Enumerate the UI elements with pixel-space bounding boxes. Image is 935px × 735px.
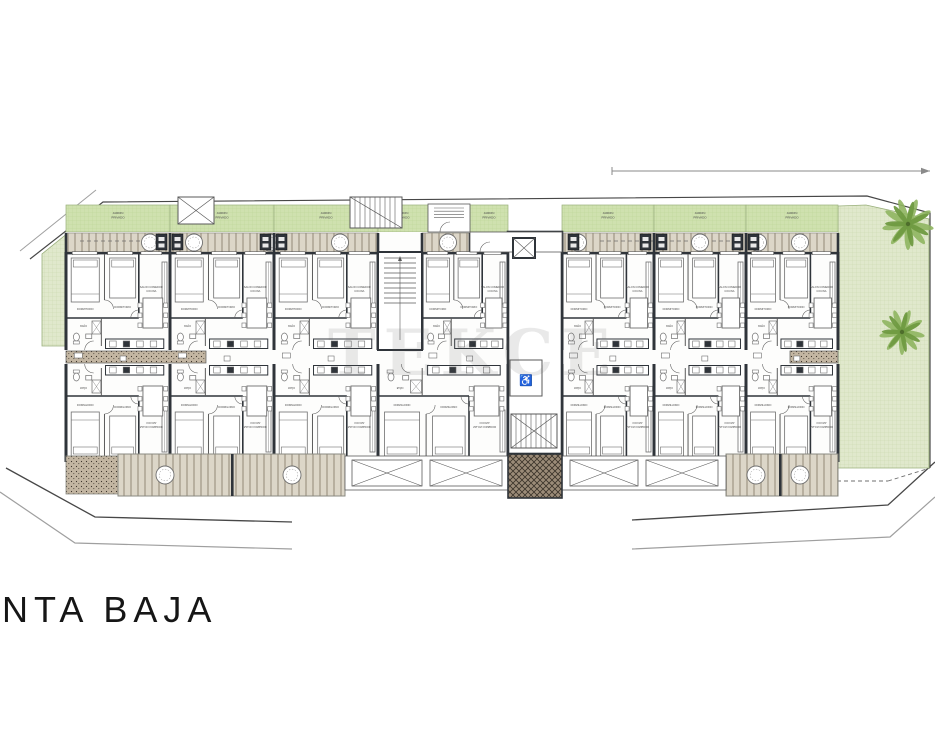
- svg-text:DORMITORIO: DORMITORIO: [663, 403, 680, 407]
- round-table: [792, 234, 809, 251]
- round-table: [791, 466, 809, 484]
- svg-text:BAÑO: BAÑO: [758, 386, 765, 389]
- svg-text:JARDIN: JARDIN: [217, 211, 228, 215]
- svg-text:DORMITORIO: DORMITORIO: [218, 305, 235, 309]
- svg-text:JARDIN: JARDIN: [787, 211, 798, 215]
- svg-text:JARDIN: JARDIN: [695, 211, 706, 215]
- svg-text:DORMITORIO: DORMITORIO: [571, 307, 588, 311]
- svg-text:DORMITORIO: DORMITORIO: [114, 405, 131, 409]
- svg-text:PRIVADO: PRIVADO: [215, 216, 229, 220]
- round-table: [332, 234, 349, 251]
- plan-title: NTA BAJA: [2, 589, 217, 631]
- svg-text:BAÑO: BAÑO: [758, 325, 765, 328]
- svg-text:DORMITORIO: DORMITORIO: [77, 307, 94, 311]
- pergola-panel: [352, 460, 422, 486]
- sofa: [500, 410, 505, 452]
- svg-text:BAÑO: BAÑO: [433, 325, 440, 328]
- svg-text:PRIVADO: PRIVADO: [601, 216, 615, 220]
- roof-access-box: [178, 197, 214, 224]
- kitchen-counter: [314, 339, 372, 349]
- svg-text:COCINA: COCINA: [724, 289, 734, 293]
- svg-text:DORMITORIO: DORMITORIO: [604, 305, 621, 309]
- terrace-band-top: [65, 233, 840, 252]
- kitchen-counter: [781, 366, 833, 376]
- svg-text:JARDIN: JARDIN: [603, 211, 614, 215]
- svg-text:SALON COMEDOR: SALON COMEDOR: [244, 425, 267, 429]
- kitchen-counter: [597, 339, 649, 349]
- svg-text:SALON COMEDOR: SALON COMEDOR: [718, 425, 741, 429]
- svg-text:DORMITORIO: DORMITORIO: [696, 405, 713, 409]
- svg-text:COCINA: COCINA: [354, 289, 364, 293]
- svg-text:DORMITORIO: DORMITORIO: [571, 403, 588, 407]
- svg-text:BAÑO: BAÑO: [80, 386, 87, 389]
- dimension-line: [612, 167, 930, 175]
- svg-text:SALON COMEDOR: SALON COMEDOR: [244, 285, 267, 289]
- dining-table: [469, 386, 504, 416]
- svg-text:DORMITORIO: DORMITORIO: [181, 403, 198, 407]
- svg-text:COCINA: COCINA: [487, 289, 497, 293]
- pergola-panel: [570, 460, 638, 486]
- svg-text:DORMITORIO: DORMITORIO: [604, 405, 621, 409]
- svg-text:BAÑO: BAÑO: [574, 386, 581, 389]
- svg-text:DORMITORIO: DORMITORIO: [181, 307, 198, 311]
- svg-text:DORMITORIO: DORMITORIO: [394, 403, 411, 407]
- svg-text:SALON COMEDOR: SALON COMEDOR: [718, 285, 741, 289]
- stair-shaft: [378, 252, 422, 350]
- kitchen-counter: [781, 339, 833, 349]
- svg-text:BAÑO: BAÑO: [288, 386, 295, 389]
- svg-text:BAÑO: BAÑO: [184, 325, 191, 328]
- svg-text:DORMITORIO: DORMITORIO: [755, 403, 772, 407]
- svg-text:SALON COMEDOR: SALON COMEDOR: [810, 425, 833, 429]
- svg-text:DORMITORIO: DORMITORIO: [663, 307, 680, 311]
- round-table: [440, 234, 457, 251]
- svg-text:COCINA: COCINA: [632, 289, 642, 293]
- svg-text:DORMITORIO: DORMITORIO: [788, 305, 805, 309]
- svg-text:COCINA: COCINA: [724, 421, 734, 425]
- floor-plan-page: JARDINPRIVADOJARDINPRIVADOJARDINPRIVADOJ…: [0, 0, 935, 735]
- svg-text:PRIVADO: PRIVADO: [693, 216, 707, 220]
- round-table: [156, 466, 174, 484]
- kitchen-counter: [210, 339, 268, 349]
- core-stairs: [511, 414, 557, 448]
- svg-text:BAÑO: BAÑO: [574, 325, 581, 328]
- svg-text:BAÑO: BAÑO: [397, 386, 404, 389]
- svg-text:PRIVADO: PRIVADO: [111, 216, 125, 220]
- svg-text:SALON COMEDOR: SALON COMEDOR: [626, 285, 649, 289]
- terrace-band-bottom: [66, 454, 838, 496]
- pergola-panel: [430, 460, 502, 486]
- svg-text:COCINA: COCINA: [632, 421, 642, 425]
- kitchen-counter: [314, 366, 372, 376]
- svg-text:BAÑO: BAÑO: [666, 386, 673, 389]
- round-table: [692, 234, 709, 251]
- svg-text:DORMITORIO: DORMITORIO: [788, 405, 805, 409]
- kitchen-counter: [689, 339, 741, 349]
- svg-text:COCINA: COCINA: [250, 289, 260, 293]
- svg-text:DORMITORIO: DORMITORIO: [440, 405, 457, 409]
- svg-text:DORMITORIO: DORMITORIO: [77, 403, 94, 407]
- exterior-stair-box: [350, 197, 402, 228]
- wheelchair-icon: ♿: [519, 374, 533, 387]
- accessible-wc: ♿: [510, 360, 542, 396]
- svg-text:SALON COMEDOR: SALON COMEDOR: [140, 425, 163, 429]
- svg-text:BAÑO: BAÑO: [288, 325, 295, 328]
- svg-text:SALON COMEDOR: SALON COMEDOR: [626, 425, 649, 429]
- svg-text:SALON COMEDOR: SALON COMEDOR: [348, 425, 371, 429]
- garden-cell: JARDINPRIVADO: [562, 205, 654, 232]
- svg-text:PRIVADO: PRIVADO: [319, 216, 333, 220]
- garden-cell: JARDINPRIVADO: [470, 205, 508, 232]
- svg-text:COCINA: COCINA: [816, 421, 826, 425]
- kitchen-counter: [427, 366, 500, 376]
- garden-cell: JARDINPRIVADO: [654, 205, 746, 232]
- kitchen-counter: [455, 339, 503, 349]
- svg-text:DORMITORIO: DORMITORIO: [114, 305, 131, 309]
- svg-text:PRIVADO: PRIVADO: [785, 216, 799, 220]
- kitchen-counter: [689, 366, 741, 376]
- kitchen-counter: [106, 339, 164, 349]
- svg-text:COCINA: COCINA: [354, 421, 364, 425]
- svg-text:PRIVADO: PRIVADO: [482, 216, 496, 220]
- svg-text:JARDIN: JARDIN: [321, 211, 332, 215]
- kitchen-counter: [210, 366, 268, 376]
- svg-text:SALON COMEDOR: SALON COMEDOR: [348, 285, 371, 289]
- svg-text:COCINA: COCINA: [146, 421, 156, 425]
- svg-text:SALON COMEDOR: SALON COMEDOR: [481, 285, 504, 289]
- svg-text:BAÑO: BAÑO: [184, 386, 191, 389]
- entrance-mat: [508, 454, 562, 498]
- main-entrance-top: [428, 204, 470, 232]
- pergola-panel: [646, 460, 718, 486]
- svg-text:DORMITORIO: DORMITORIO: [696, 305, 713, 309]
- elevator: [513, 238, 535, 258]
- svg-text:DORMITORIO: DORMITORIO: [755, 307, 772, 311]
- svg-text:DORMITORIO: DORMITORIO: [285, 403, 302, 407]
- svg-text:DORMITORIO: DORMITORIO: [285, 307, 302, 311]
- svg-text:COCINA: COCINA: [816, 289, 826, 293]
- svg-text:SALON COMEDOR: SALON COMEDOR: [140, 285, 163, 289]
- svg-text:BAÑO: BAÑO: [666, 325, 673, 328]
- garden-cell: JARDINPRIVADO: [66, 205, 170, 232]
- svg-text:SALON COMEDOR: SALON COMEDOR: [473, 425, 496, 429]
- svg-text:COCINA: COCINA: [480, 421, 490, 425]
- svg-text:DORMITORIO: DORMITORIO: [322, 305, 339, 309]
- round-table: [186, 234, 203, 251]
- svg-text:DORMITORIO: DORMITORIO: [218, 405, 235, 409]
- svg-text:JARDIN: JARDIN: [113, 211, 124, 215]
- svg-text:COCINA: COCINA: [146, 289, 156, 293]
- svg-text:JARDIN: JARDIN: [484, 211, 495, 215]
- svg-text:SALON COMEDOR: SALON COMEDOR: [810, 285, 833, 289]
- round-table: [283, 466, 301, 484]
- round-table: [747, 466, 765, 484]
- kitchen-counter: [597, 366, 649, 376]
- svg-text:BAÑO: BAÑO: [80, 325, 87, 328]
- svg-text:DORMITORIO: DORMITORIO: [430, 307, 447, 311]
- svg-text:COCINA: COCINA: [250, 421, 260, 425]
- garden-cell: JARDINPRIVADO: [746, 205, 838, 232]
- kitchen-counter: [106, 366, 164, 376]
- svg-text:DORMITORIO: DORMITORIO: [322, 405, 339, 409]
